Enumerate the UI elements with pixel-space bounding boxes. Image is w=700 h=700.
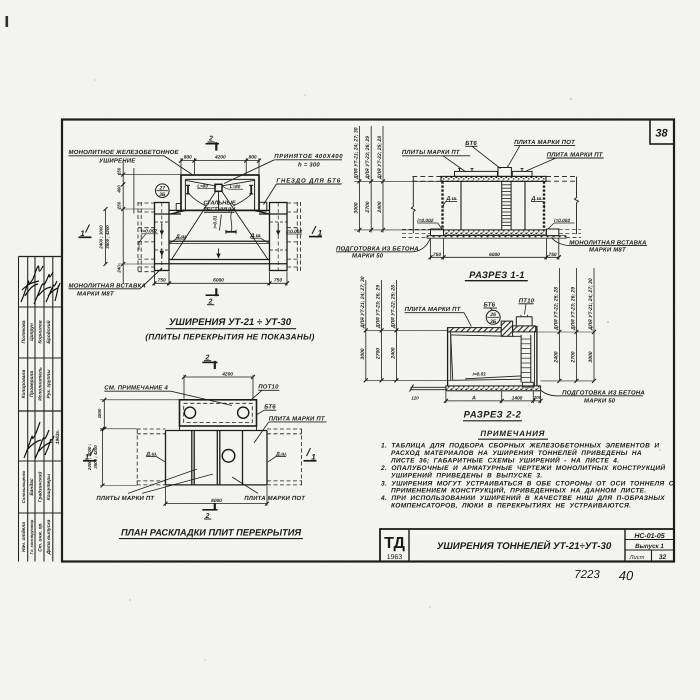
svg-text:Для УТ-23; 26; 29: Для УТ-23; 26; 29 [365, 136, 371, 180]
svg-text:Подготовка из бетона: Подготовка из бетона [336, 245, 419, 252]
svg-text:ПТ10: ПТ10 [519, 297, 535, 304]
svg-text:Плита марки ПТ: Плита марки ПТ [547, 151, 604, 158]
svg-text:Стальные: Стальные [203, 201, 236, 207]
svg-text:1800: 1800 [97, 408, 102, 418]
svg-text:См. примечание 4: См. примечание 4 [104, 385, 168, 392]
svg-text:компенсаторов, люки в перек: компенсаторов, люки в перекрытиях не уст… [391, 503, 631, 510]
svg-text:1400: 1400 [512, 395, 523, 401]
svg-text:750: 750 [274, 278, 282, 284]
svg-text:6000: 6000 [211, 498, 222, 504]
svg-text:3600 ; 4200: 3600 ; 4200 [105, 225, 110, 249]
svg-text:ТД: ТД [384, 535, 405, 552]
svg-text:2. Опалубочные и арматурные: 2. Опалубочные и арматурные чертежи моно… [380, 464, 665, 472]
svg-text:Градзинский: Градзинский [37, 472, 43, 503]
svg-text:(Плиты перекрытия не показа: (Плиты перекрытия не показаны) [145, 333, 314, 342]
svg-text:БТ6: БТ6 [264, 404, 276, 411]
svg-text:Плита марки ПТ: Плита марки ПТ [269, 415, 326, 422]
svg-text:h = 300: h = 300 [298, 161, 320, 168]
svg-text:Разрез 1-1: Разрез 1-1 [469, 269, 525, 280]
svg-text:2400: 2400 [390, 347, 396, 359]
svg-text:марки М8Т: марки М8Т [589, 247, 627, 254]
svg-text:750: 750 [158, 278, 166, 284]
svg-text:Уширения тоннелей УТ-21÷УТ-3: Уширения тоннелей УТ-21÷УТ-30 [437, 540, 612, 552]
svg-text:800: 800 [184, 155, 192, 161]
svg-text:А: А [471, 395, 476, 401]
svg-text:Рук. группы: Рук. группы [46, 369, 52, 399]
svg-text:Для УТ-23; 26; 29: Для УТ-23; 26; 29 [376, 285, 382, 329]
svg-text:НС-01-05: НС-01-05 [634, 533, 664, 540]
svg-text:марки 50: марки 50 [584, 397, 616, 404]
svg-text:38: 38 [655, 128, 668, 140]
svg-text:применением конструкций, при: применением конструкций, приведенных на … [391, 487, 647, 495]
svg-text:Плита марки ПОТ: Плита марки ПОТ [514, 139, 576, 146]
svg-text:4200: 4200 [214, 155, 226, 161]
svg-text:Кошутеры: Кошутеры [46, 473, 52, 500]
svg-text:i=0.01: i=0.01 [213, 215, 218, 228]
svg-text:2700: 2700 [570, 351, 576, 363]
svg-text:Для УТ-22; 25; 28: Для УТ-22; 25; 28 [390, 285, 396, 329]
svg-text:расход материалов на уширен: расход материалов на уширения тоннелей п… [391, 449, 642, 457]
svg-text:БТ6: БТ6 [465, 140, 477, 147]
svg-text:750: 750 [433, 252, 441, 258]
svg-text:1963г.: 1963г. [55, 430, 61, 445]
svg-text:Соловьющенко: Соловьющенко [21, 470, 26, 503]
svg-text:26: 26 [489, 312, 496, 318]
svg-text:6000: 6000 [213, 278, 224, 284]
svg-text:Для УТ-23; 26; 29: Для УТ-23; 26; 29 [570, 287, 576, 331]
svg-text:Для УТ-22; 25; 28: Для УТ-22; 25; 28 [377, 136, 383, 180]
svg-text:уширение: уширение [99, 158, 136, 165]
svg-text:2400: 2400 [377, 201, 383, 213]
svg-text:Ст. инж. пр.: Ст. инж. пр. [37, 522, 43, 552]
svg-text:120: 120 [411, 396, 419, 401]
svg-text:250: 250 [117, 201, 122, 210]
svg-text:4200: 4200 [221, 371, 233, 377]
svg-text:750: 750 [549, 252, 557, 258]
svg-text:3000: 3000 [353, 202, 359, 213]
svg-text:4. При использовании уширени: 4. При использовании уширений в качестве… [380, 494, 665, 502]
svg-text:3000: 3000 [588, 351, 594, 362]
svg-text:Для УТ-21; 24; 27; 30: Для УТ-21; 24; 27; 30 [353, 127, 359, 180]
svg-text:240: 240 [117, 265, 122, 274]
svg-text:1. Таблица для подбора сбор: 1. Таблица для подбора сборных железобет… [381, 442, 659, 449]
svg-text:400: 400 [117, 185, 122, 194]
svg-text:Копировала: Копировала [21, 369, 27, 398]
svg-text:марки 50: марки 50 [352, 253, 384, 260]
svg-text:План раскладки плит перекры: План раскладки плит перекрытия [121, 527, 301, 537]
svg-text:2700: 2700 [376, 348, 382, 360]
svg-text:i=0.01: i=0.01 [473, 372, 487, 378]
svg-text:3б: 3б [490, 319, 497, 325]
svg-text:Плиты марки ПТ: Плиты марки ПТ [402, 149, 461, 156]
svg-text:Принятое 400х400: Принятое 400х400 [274, 153, 343, 160]
svg-text:БТ6: БТ6 [484, 302, 496, 309]
svg-text:ПОТ10: ПОТ10 [258, 384, 279, 391]
svg-text:3б: 3б [159, 192, 166, 198]
svg-text:Дата выпуска: Дата выпуска [46, 519, 52, 555]
svg-text:27: 27 [159, 186, 166, 192]
svg-text:Бандас: Бандас [29, 478, 35, 496]
svg-text:Для УТ-22; 25; 28: Для УТ-22; 25; 28 [553, 287, 559, 331]
svg-text:L=80: L=80 [197, 183, 208, 188]
svg-text:листе 36; габаритные схемы: листе 36; габаритные схемы уширений - на… [390, 456, 619, 464]
svg-text:3000: 3000 [360, 348, 366, 359]
svg-text:Корнилов: Корнилов [37, 320, 43, 343]
svg-text:200: 200 [533, 395, 542, 400]
svg-text:Ципрун: Ципрун [29, 323, 35, 341]
svg-text:800: 800 [249, 155, 257, 161]
svg-text:Для УТ-21; 24; 27; 30: Для УТ-21; 24; 27; 30 [588, 278, 594, 331]
svg-text:2400: 2400 [553, 351, 559, 363]
svg-text:Исполнитель: Исполнитель [37, 367, 43, 401]
svg-text:Уширения УТ-21 ÷ УТ-30: Уширения УТ-21 ÷ УТ-30 [169, 317, 292, 328]
svg-text:Плиты марки ПТ: Плиты марки ПТ [96, 495, 155, 502]
svg-text:Плита марки ПОТ: Плита марки ПОТ [244, 495, 306, 502]
svg-text:Гнездо для БТ6: Гнездо для БТ6 [276, 177, 341, 184]
svg-text:Примечания: Примечания [480, 429, 545, 438]
svg-text:6000: 6000 [489, 252, 500, 258]
svg-text:1963: 1963 [387, 554, 403, 561]
svg-text:L=80: L=80 [230, 184, 241, 189]
svg-text:Плита марки ПТ: Плита марки ПТ [405, 306, 462, 313]
svg-text:Лист: Лист [629, 555, 645, 561]
svg-text:2700: 2700 [365, 201, 371, 213]
svg-text:32: 32 [659, 554, 667, 561]
svg-text:Полякова: Полякова [21, 320, 27, 343]
svg-text:40: 40 [619, 568, 634, 583]
svg-text:Нач. отдела: Нач. отдела [21, 522, 27, 552]
svg-text:7223: 7223 [574, 569, 600, 581]
svg-text:Монолитное железобетонное: Монолитное железобетонное [69, 149, 180, 156]
svg-text:Бродский: Бродский [46, 320, 52, 343]
svg-text:150: 150 [117, 167, 122, 175]
svg-text:2400 ; 3000: 2400 ; 3000 [98, 225, 103, 250]
svg-text:Разрез 2-2: Разрез 2-2 [464, 409, 522, 420]
svg-text:уширений приведены в выпуск: уширений приведены в выпуске 3. [391, 472, 543, 480]
svg-text:Проверила: Проверила [29, 371, 35, 398]
svg-text:Гл. конструктор: Гл. конструктор [29, 519, 34, 554]
svg-text:Для УТ-21; 24; 27; 30: Для УТ-21; 24; 27; 30 [360, 276, 366, 329]
svg-text:3. Уширения могут устраивать: 3. Уширения могут устраиваться в обе сто… [381, 480, 674, 487]
svg-text:2: 2 [208, 136, 213, 143]
svg-text:марки М8Т: марки М8Т [77, 290, 115, 297]
svg-text:Выпуск 1: Выпуск 1 [635, 543, 664, 550]
